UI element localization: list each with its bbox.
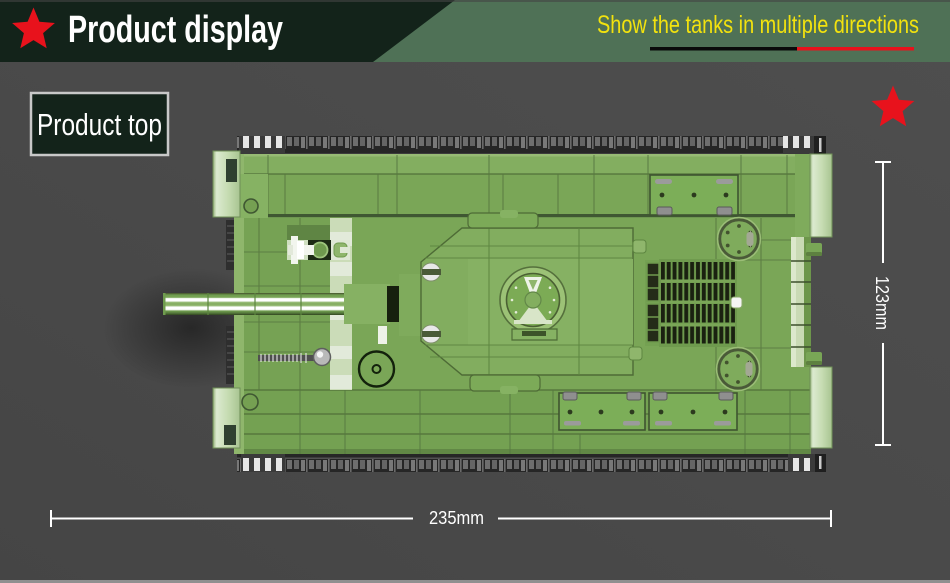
svg-text:Product top: Product top <box>37 107 162 142</box>
svg-text:Product display: Product display <box>68 9 283 51</box>
svg-text:Show the tanks in multiple dir: Show the tanks in multiple directions <box>597 11 919 39</box>
svg-text:235mm: 235mm <box>429 508 484 528</box>
svg-text:123mm: 123mm <box>872 276 892 330</box>
